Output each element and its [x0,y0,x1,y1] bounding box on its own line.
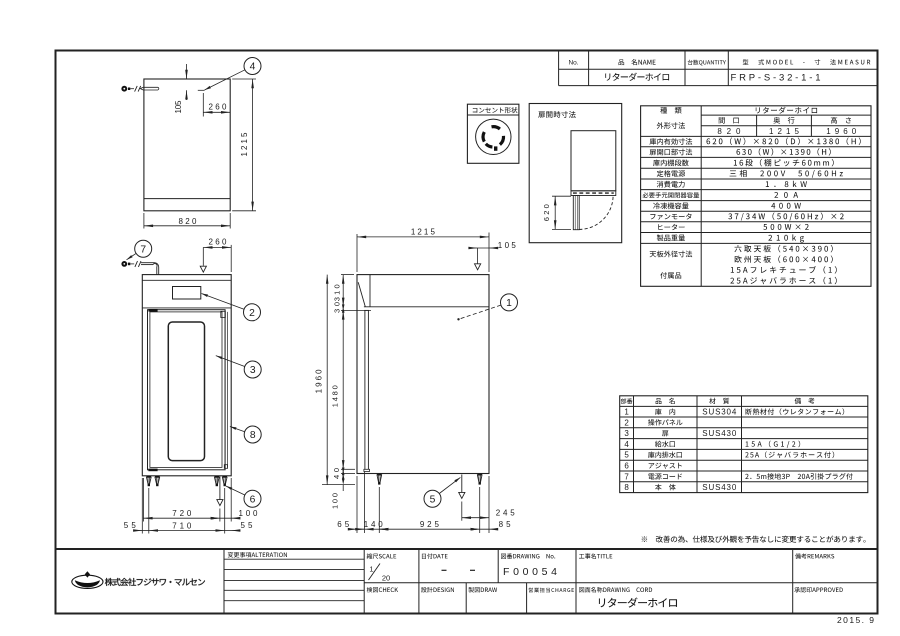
svg-text:7: 7 [140,244,146,255]
svg-text:820: 820 [717,127,741,136]
svg-text:720: 720 [172,509,192,518]
svg-text:925: 925 [420,520,440,529]
svg-text:310: 310 [332,284,341,301]
svg-text:100: 100 [239,509,259,518]
svg-text:1: 1 [506,298,512,309]
svg-text:8: 8 [624,483,629,492]
svg-text:100: 100 [331,493,340,509]
svg-text:1: 1 [624,408,629,417]
svg-text:5: 5 [430,494,436,505]
svg-text:105: 105 [174,100,183,114]
svg-text:8: 8 [250,430,256,441]
svg-text:No.: No. [568,59,578,66]
svg-text:SUS304: SUS304 [702,408,737,417]
svg-text:1: 1 [369,565,373,574]
svg-text:3: 3 [624,429,629,438]
svg-text:6: 6 [624,462,629,471]
svg-text:20: 20 [382,574,390,583]
svg-text:260: 260 [209,238,228,247]
svg-text:SUS430: SUS430 [702,483,737,492]
svg-text:4: 4 [624,440,629,449]
svg-text:2: 2 [624,418,629,427]
svg-text:SUS430: SUS430 [702,429,737,438]
svg-text:2: 2 [249,308,255,319]
svg-text:2015. 9: 2015. 9 [837,615,874,625]
svg-text:6: 6 [250,494,256,505]
svg-text:1960: 1960 [314,369,323,394]
svg-text:4: 4 [250,62,256,73]
svg-text:620: 620 [542,204,551,221]
svg-text:245: 245 [496,508,516,517]
svg-text:3: 3 [250,365,256,376]
svg-text:820: 820 [179,217,198,226]
svg-text:5: 5 [624,451,629,460]
svg-text:105: 105 [498,241,517,250]
svg-text:1215: 1215 [411,228,436,237]
svg-text:7: 7 [624,472,629,481]
svg-text:710: 710 [172,521,192,530]
svg-text:1480: 1480 [331,385,340,407]
svg-text:140: 140 [364,520,384,529]
svg-text:1215: 1215 [240,132,249,157]
svg-text:260: 260 [209,102,228,111]
